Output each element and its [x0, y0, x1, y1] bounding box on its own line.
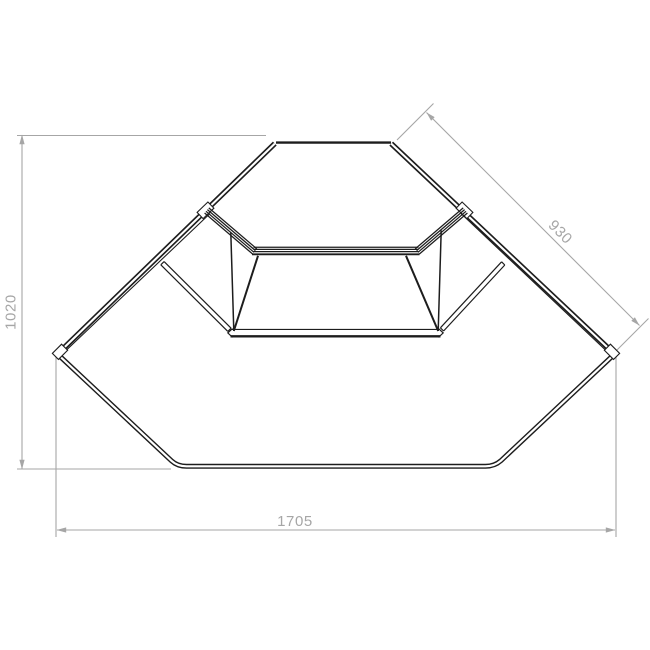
well-left-edge	[234, 256, 258, 331]
front-boundary-gap	[59, 356, 613, 467]
dimension-line-diagonal	[427, 113, 640, 326]
well-left-corner-line	[231, 233, 234, 332]
right-strip-line	[440, 262, 501, 328]
arrow-left-icon	[57, 527, 67, 532]
hatch-line	[415, 208, 463, 249]
side-glass-strips	[161, 262, 505, 332]
extension-line-apex	[397, 104, 434, 141]
arrow-down-icon	[19, 460, 24, 470]
hatch-line	[419, 213, 467, 254]
dimension-left: 1020	[3, 135, 267, 470]
glass-front-hatch	[205, 208, 468, 254]
hatch-line	[206, 211, 254, 252]
right-strip-cap	[502, 262, 505, 265]
dimension-label-bottom: 1705	[277, 513, 313, 530]
dimension-label-left: 1020	[3, 294, 20, 330]
upper-left-band-gap	[59, 144, 275, 353]
upper-right-band-gap	[391, 144, 613, 353]
hatch-line	[205, 213, 253, 254]
extension-line-corner	[617, 319, 649, 351]
hatch-line	[418, 211, 466, 252]
dimension-bottom: 1705	[56, 357, 616, 538]
upper-left-inner-line	[66, 214, 211, 352]
arrow-right-icon	[606, 527, 616, 532]
dimension-right-side: 930	[397, 104, 649, 351]
right-strip-line	[444, 265, 505, 331]
well-right-corner-line	[438, 231, 441, 332]
dimension-label-right-side: 930	[545, 217, 576, 248]
left-strip-line	[161, 265, 228, 332]
left-strip-cap	[161, 262, 164, 265]
corner-counter-plan-drawing: 1020 930 1705	[0, 0, 650, 650]
well-right-edge	[406, 256, 438, 331]
hatch-line	[209, 208, 257, 249]
front-boundary	[59, 356, 613, 467]
counter-outline	[52, 143, 619, 467]
left-strip-line	[164, 262, 231, 329]
display-well	[228, 231, 443, 338]
technical-drawing-canvas: 1020 930 1705	[0, 0, 650, 650]
